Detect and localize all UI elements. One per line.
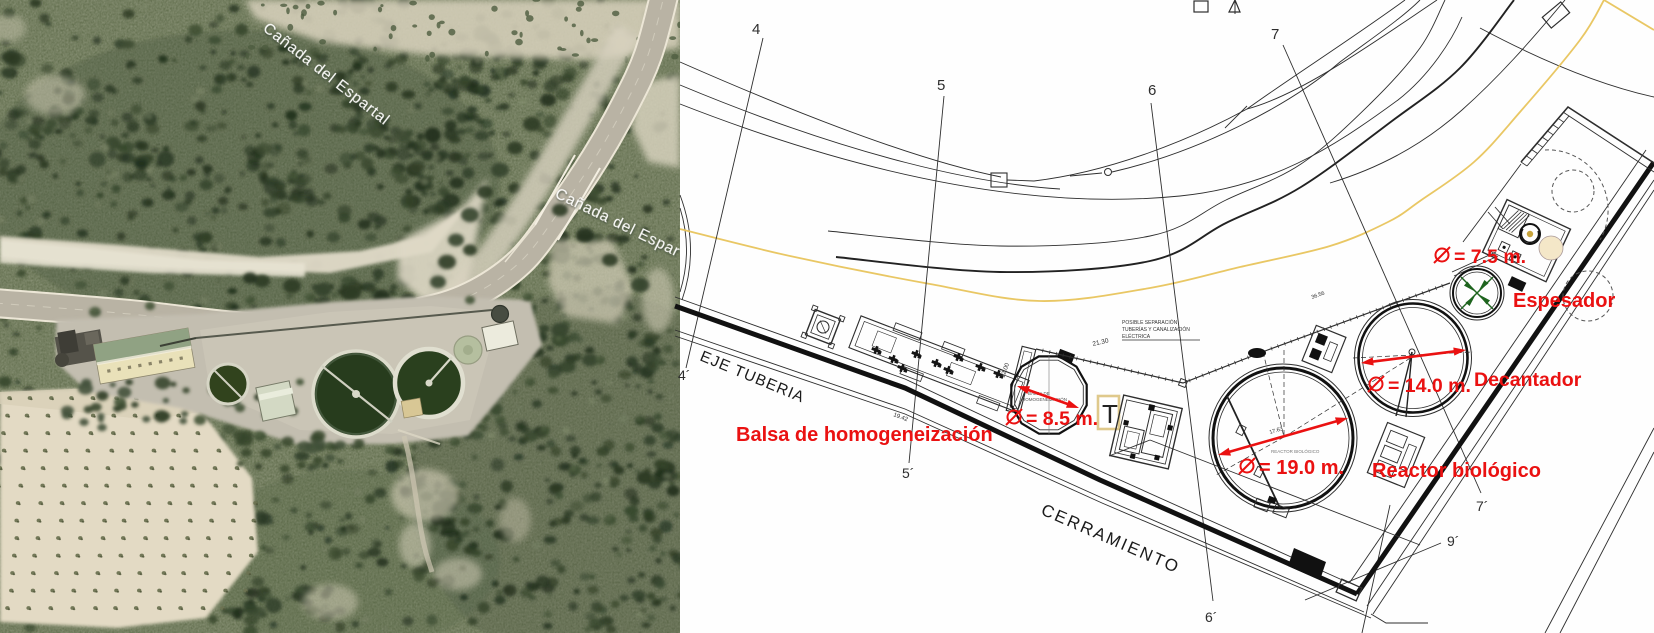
svg-text:= 19.0 m.: = 19.0 m. [1259, 457, 1344, 479]
svg-text:6: 6 [1148, 82, 1156, 99]
svg-text:TUBERÍAS Y CANALIZACIÓN: TUBERÍAS Y CANALIZACIÓN [1122, 326, 1190, 333]
svg-text:POSIBLE SEPARACIÓN: POSIBLE SEPARACIÓN [1122, 319, 1178, 326]
svg-text:ELÉCTRICA: ELÉCTRICA [1122, 333, 1151, 340]
svg-text:Espesador: Espesador [1513, 290, 1615, 312]
svg-text:= 7.5 m.: = 7.5 m. [1454, 246, 1526, 268]
svg-text:9´: 9´ [1447, 533, 1459, 549]
svg-text:Decantador: Decantador [1474, 369, 1582, 391]
svg-text:5: 5 [937, 77, 945, 94]
svg-text:= 14.0 m.: = 14.0 m. [1388, 375, 1471, 397]
svg-text:REACTOR BIOLÓGICO: REACTOR BIOLÓGICO [1271, 448, 1320, 454]
svg-text:5´: 5´ [902, 465, 914, 481]
svg-text:6´: 6´ [1205, 609, 1217, 625]
svg-text:= 8.5 m.: = 8.5 m. [1026, 408, 1098, 430]
svg-text:4´: 4´ [678, 367, 690, 383]
svg-text:Reactor biológico: Reactor biológico [1372, 460, 1541, 482]
svg-text:7: 7 [1271, 26, 1279, 43]
svg-text:7´: 7´ [1476, 498, 1488, 514]
svg-text:4: 4 [752, 21, 760, 38]
svg-text:Balsa de homogeneización: Balsa de homogeneización [736, 424, 993, 446]
svg-text:T: T [1102, 399, 1118, 429]
